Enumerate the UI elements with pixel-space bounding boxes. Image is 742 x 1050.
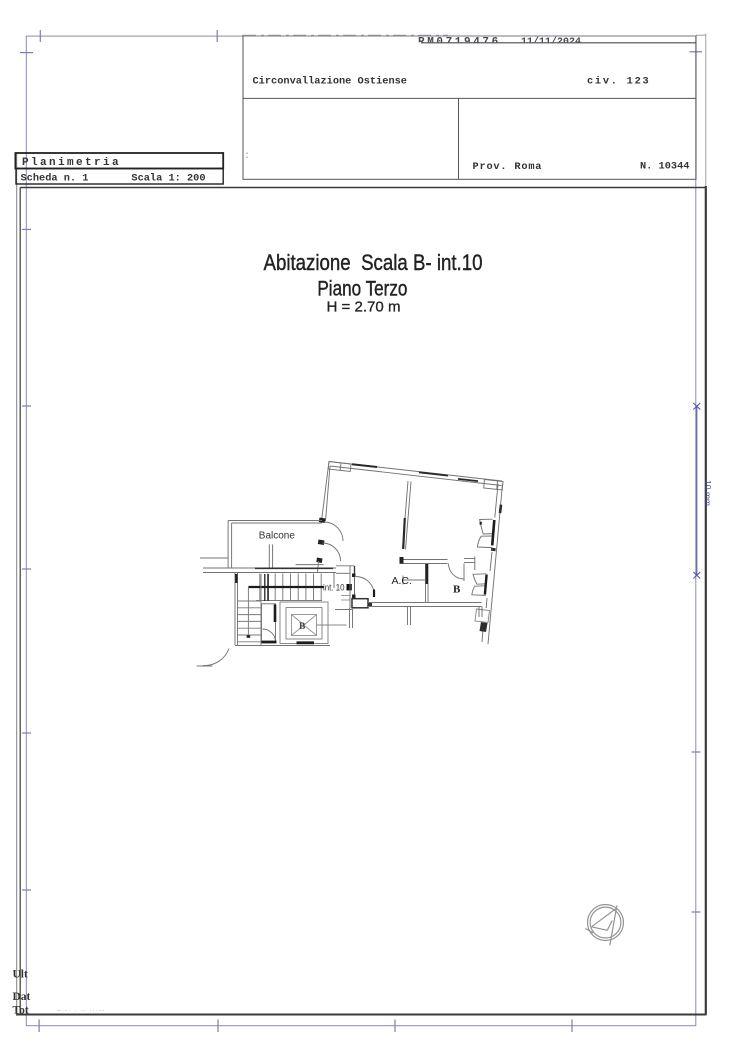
- svg-text:H = 2.70 m: H = 2.70 m: [327, 299, 401, 316]
- svg-text:Prov. Roma: Prov. Roma: [473, 161, 543, 173]
- svg-text:Scheda n. 1: Scheda n. 1: [21, 173, 89, 185]
- svg-text::: :: [244, 151, 250, 162]
- svg-text:int. 10: int. 10: [323, 583, 345, 593]
- svg-text:Abitazione Scala B- int.10: Abitazione Scala B- int.10: [264, 250, 483, 275]
- svg-text:civ. 123: civ. 123: [587, 76, 650, 88]
- svg-text:Circonvallazione Ostiense: Circonvallazione Ostiense: [253, 76, 407, 88]
- svg-text:Dat: Dat: [13, 991, 31, 1003]
- svg-text:Piano Terzo: Piano Terzo: [317, 278, 407, 301]
- svg-text:Ult: Ult: [13, 969, 29, 981]
- svg-text:~·-· · ·- ···--: ~·-· · ·- ···--: [57, 1008, 105, 1015]
- svg-text:N. 10344: N. 10344: [640, 161, 689, 173]
- svg-text:10 mm: 10 mm: [703, 480, 713, 506]
- svg-text:B: B: [453, 584, 461, 596]
- svg-text:A.C.: A.C.: [392, 575, 412, 587]
- svg-text:Planimetria: Planimetria: [22, 157, 121, 169]
- svg-text:Tot: Tot: [13, 1005, 29, 1017]
- svg-text:B: B: [299, 622, 306, 632]
- svg-text:Balcone: Balcone: [259, 531, 296, 542]
- svg-text:Scala 1: 200: Scala 1: 200: [131, 173, 205, 185]
